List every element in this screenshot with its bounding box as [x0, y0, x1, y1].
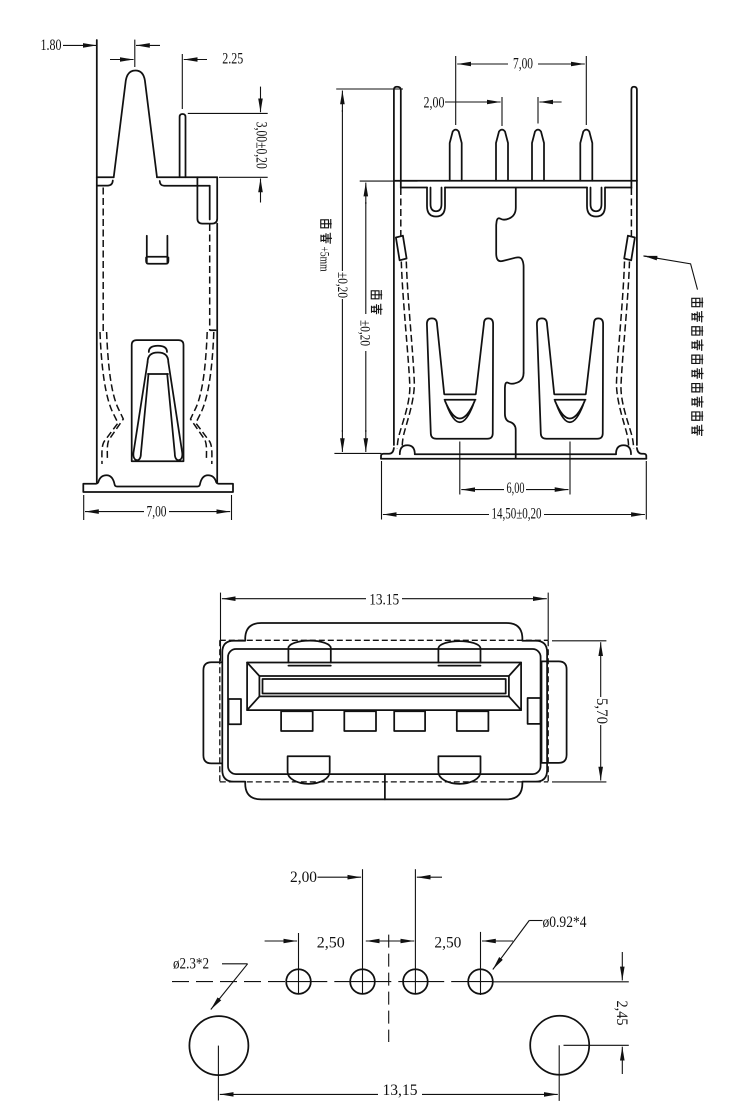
- svg-text:2,45: 2,45: [613, 1001, 630, 1026]
- svg-text:2,50: 2,50: [317, 935, 345, 952]
- svg-text:13,15: 13,15: [383, 1082, 418, 1099]
- svg-text:14,50±0,20: 14,50±0,20: [492, 506, 542, 523]
- svg-text:2.25: 2.25: [222, 51, 243, 68]
- svg-text:5,70: 5,70: [593, 698, 610, 724]
- svg-text:1.80: 1.80: [41, 37, 62, 54]
- svg-text:ø2.3*2: ø2.3*2: [173, 956, 209, 973]
- svg-text:ø0.92*4: ø0.92*4: [543, 914, 587, 931]
- svg-text:6,00: 6,00: [507, 480, 525, 497]
- svg-text:13.15: 13.15: [369, 591, 399, 608]
- svg-text:+5mm: +5mm: [318, 247, 333, 272]
- svg-text:2,50: 2,50: [434, 935, 461, 952]
- svg-text:±0,20: ±0,20: [357, 320, 373, 346]
- svg-text:7,00: 7,00: [147, 504, 167, 521]
- svg-text:7,00: 7,00: [513, 56, 533, 73]
- svg-text:3,00±0,20: 3,00±0,20: [253, 122, 270, 169]
- svg-text:2,00: 2,00: [290, 869, 317, 886]
- svg-text:±0,20: ±0,20: [334, 272, 350, 298]
- svg-text:2,00: 2,00: [424, 95, 445, 112]
